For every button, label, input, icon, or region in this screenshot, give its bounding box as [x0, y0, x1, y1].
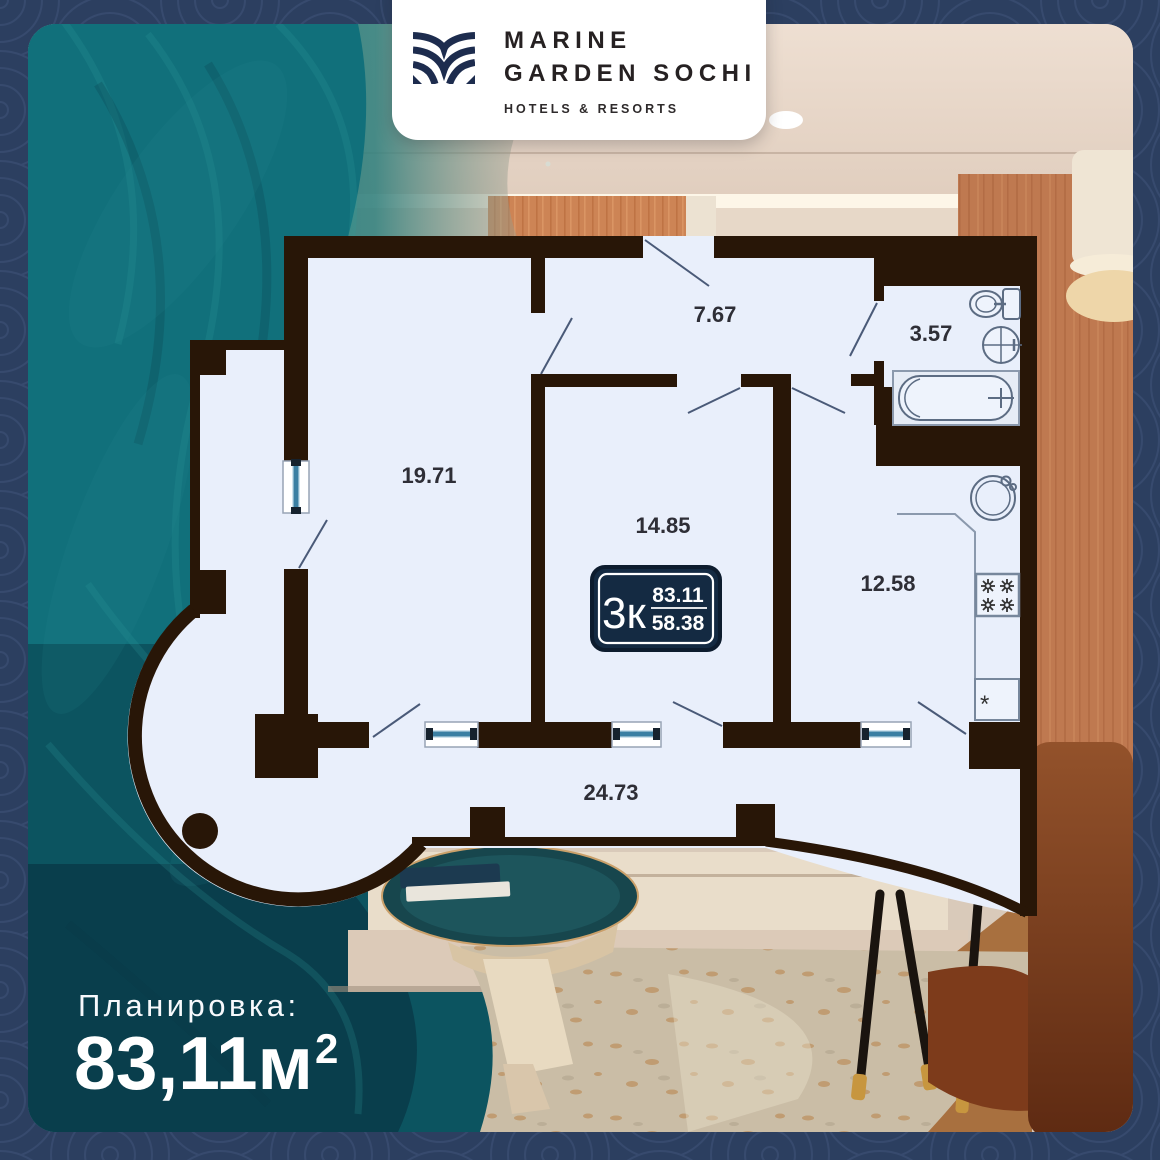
svg-text:12.58: 12.58	[860, 571, 915, 596]
svg-text:3.57: 3.57	[910, 321, 953, 346]
svg-text:83.11: 83.11	[652, 584, 704, 607]
svg-text:7.67: 7.67	[694, 302, 737, 327]
svg-text:58.38: 58.38	[652, 612, 705, 635]
svg-text:24.73: 24.73	[583, 780, 638, 805]
svg-text:19.71: 19.71	[401, 463, 456, 488]
svg-text:*: *	[980, 691, 989, 718]
svg-text:14.85: 14.85	[635, 513, 690, 538]
svg-text:3к: 3к	[602, 589, 646, 638]
